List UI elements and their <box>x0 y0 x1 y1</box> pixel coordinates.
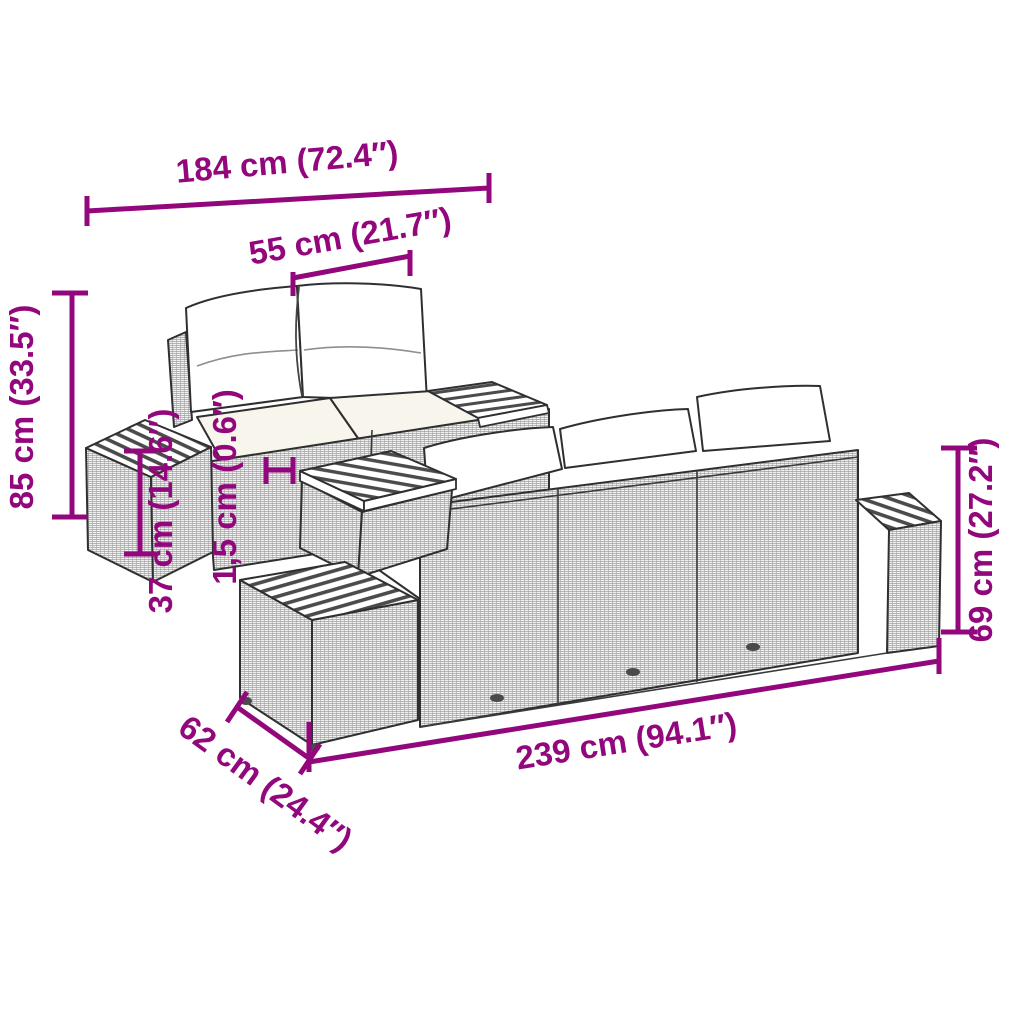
dim-bench-height: 69 cm (27.2″) <box>941 438 999 643</box>
dim-overall-height-label: 85 cm (33.5″) <box>3 305 40 510</box>
bench-clip <box>746 643 760 651</box>
dim-tabletop-thickness-label: 1,5 cm (0.6″) <box>206 389 243 585</box>
back-cushion-right <box>297 283 427 401</box>
dim-side-table-height-label: 37 cm (14.6″) <box>142 409 179 614</box>
back-cushion-left <box>186 286 303 412</box>
bench-back-cushion-2 <box>560 409 696 468</box>
product-dimension-diagram: 184 cm (72.4″) 55 cm (21.7″) 85 cm (33.5… <box>0 0 1024 1024</box>
bench-back-cushion-3 <box>697 386 830 451</box>
dim-seat-cushion-width-label: 55 cm (21.7″) <box>246 200 454 272</box>
dim-overall-height: 85 cm (33.5″) <box>3 293 88 517</box>
bench-right-table-face <box>887 521 941 653</box>
bench-left-table <box>240 562 418 752</box>
dim-overall-height-line <box>52 293 88 517</box>
dim-overall-width-label: 184 cm (72.4″) <box>174 133 399 189</box>
dim-seat-cushion-width: 55 cm (21.7″) <box>246 200 454 296</box>
diagram-svg: 184 cm (72.4″) 55 cm (21.7″) 85 cm (33.5… <box>0 0 1024 1024</box>
bench-clip <box>490 694 504 702</box>
bench-clip <box>626 668 640 676</box>
bench-left-table-front-face <box>312 600 418 745</box>
dim-bench-length-label: 239 cm (94.1″) <box>513 705 739 776</box>
dim-bench-height-label: 69 cm (27.2″) <box>962 438 999 643</box>
